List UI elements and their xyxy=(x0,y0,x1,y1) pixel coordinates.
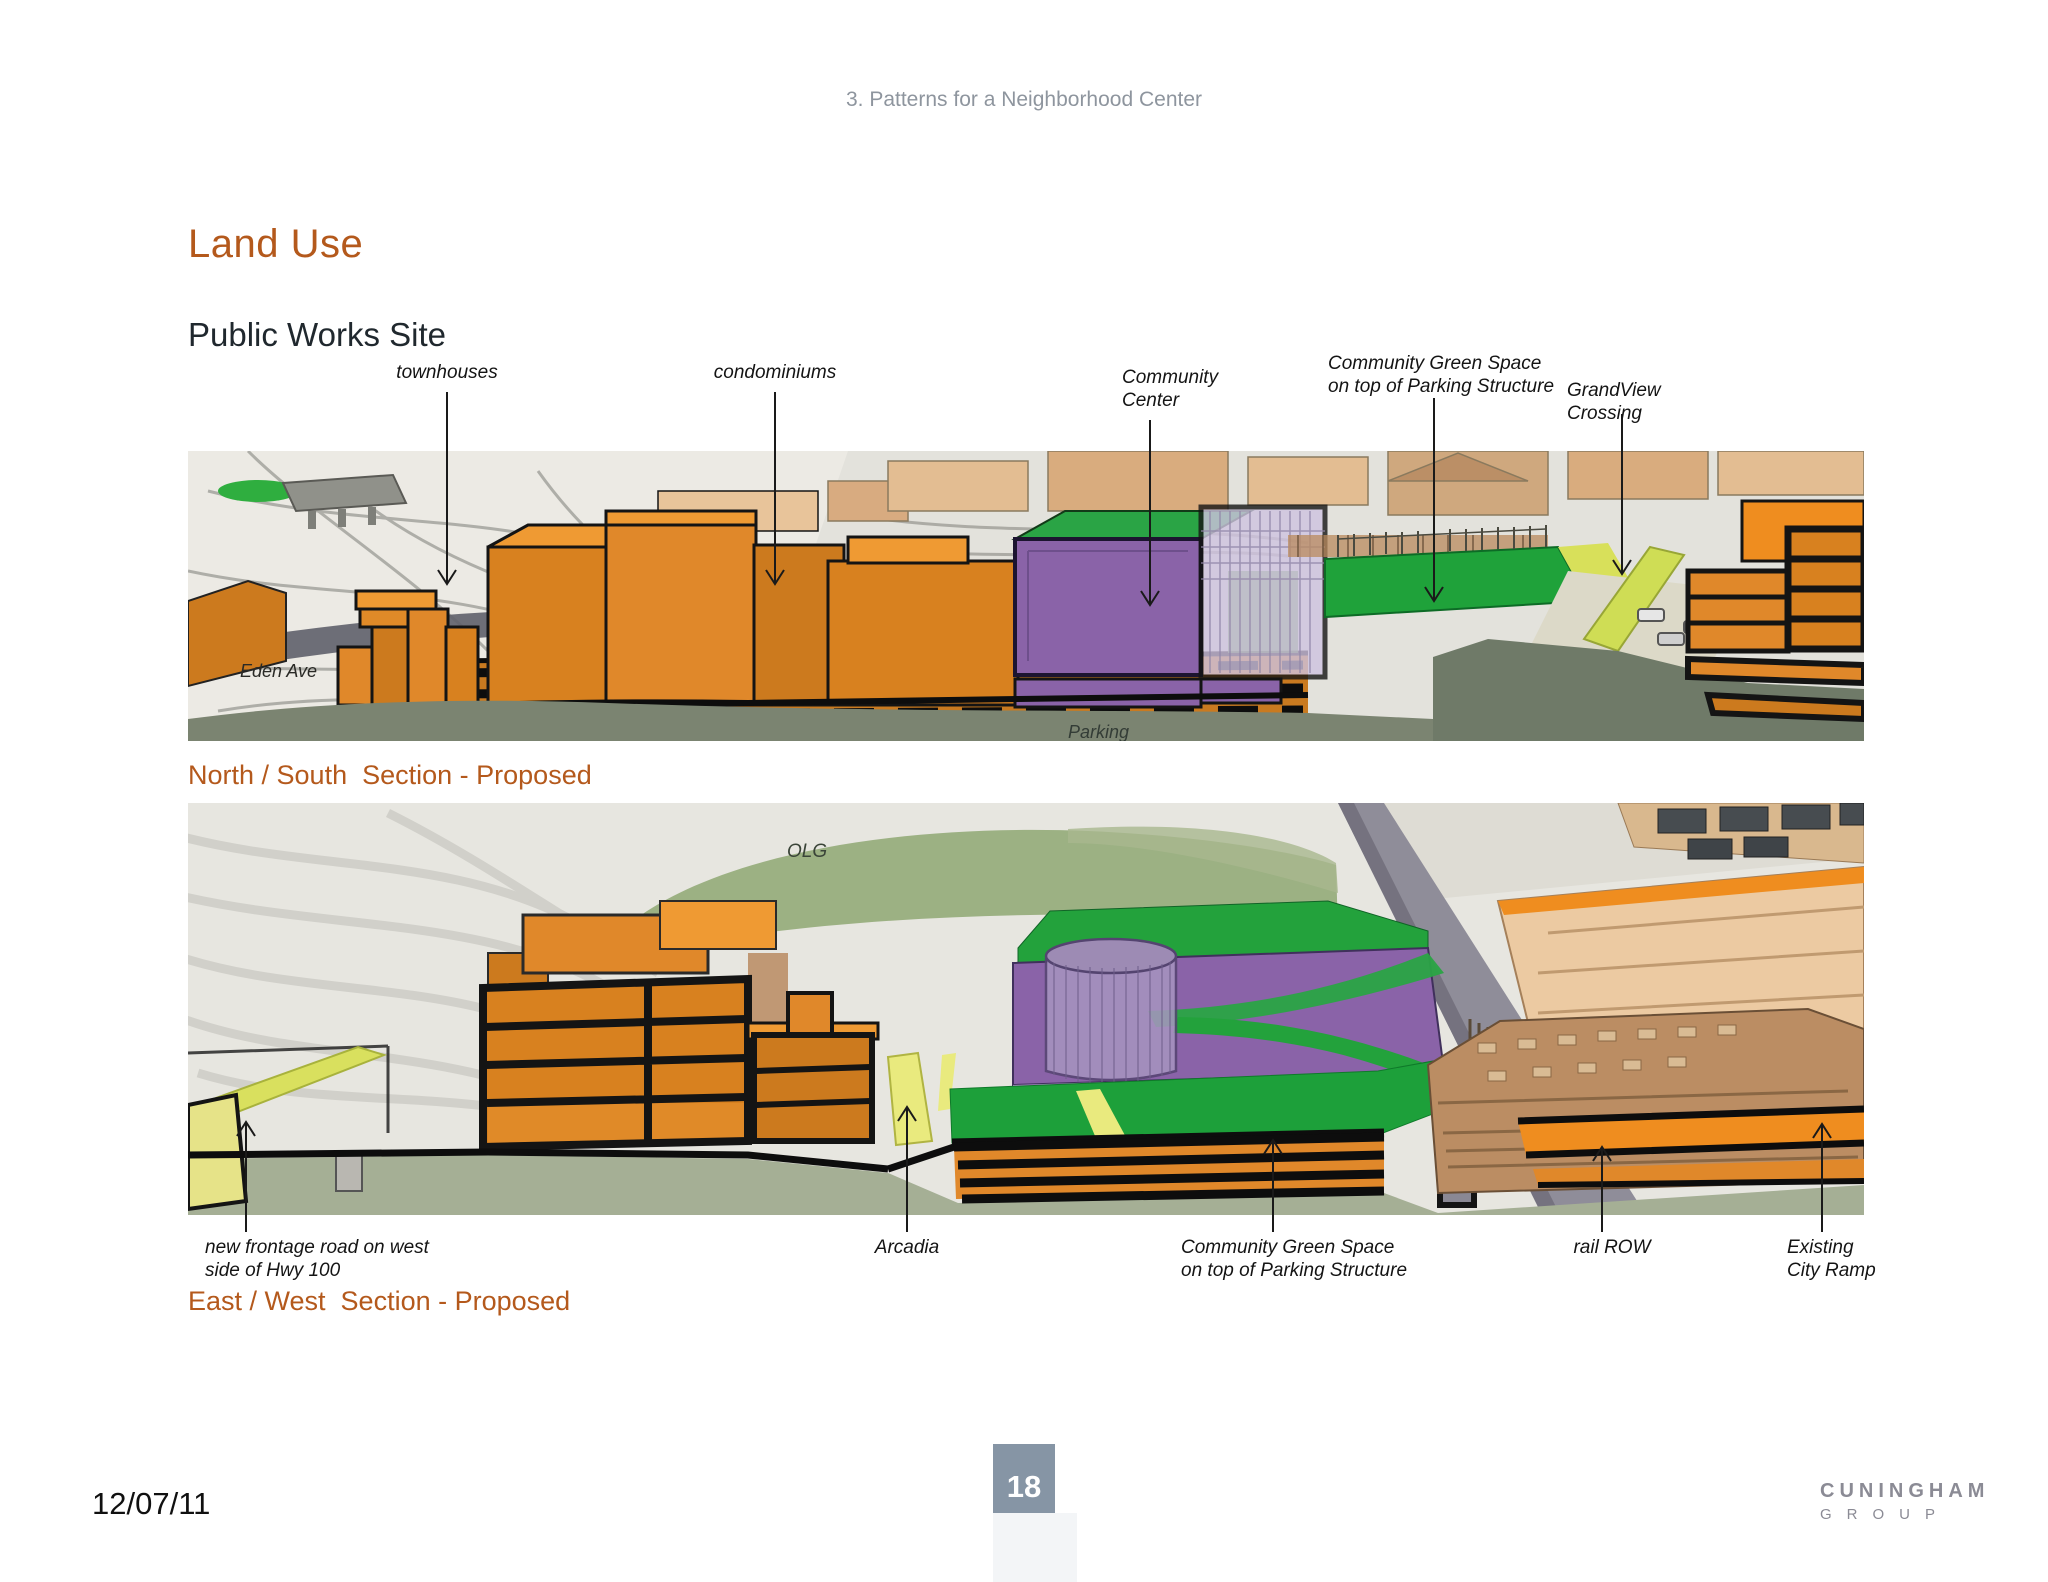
caption-east-west: East / West Section - Proposed xyxy=(188,1286,570,1317)
label-green-space-2: Community Green Space on top of Parking … xyxy=(1181,1236,1407,1282)
label-existing-city-ramp: Existing City Ramp xyxy=(1787,1236,1876,1282)
footer-date: 12/07/11 xyxy=(92,1486,210,1522)
logo-line1: CUNINGHAM xyxy=(1820,1480,1989,1503)
logo-line2: GROUP xyxy=(1820,1506,1989,1523)
east-west-section-render: OLG xyxy=(188,803,1864,1215)
figure-east-west-section: OLG xyxy=(188,803,1864,1215)
cuningham-logo: CUNINGHAM GROUP xyxy=(1820,1480,1989,1523)
document-page: 3. Patterns for a Neighborhood Center La… xyxy=(0,0,2048,1582)
parking-decks xyxy=(888,1133,1384,1199)
eden-ave-label: Eden Ave xyxy=(240,661,317,681)
olg-label: OLG xyxy=(787,841,827,862)
page-header: 3. Patterns for a Neighborhood Center xyxy=(0,88,2048,112)
label-community-center: Community Center xyxy=(1122,366,1218,412)
label-rail-row: rail ROW xyxy=(1573,1236,1650,1259)
label-condominiums: condominiums xyxy=(714,361,837,384)
community-center-complex xyxy=(1013,901,1446,1099)
parking-label: Parking xyxy=(1068,722,1129,741)
north-south-section-render: Eden Ave Parking xyxy=(188,451,1864,741)
page-badge-shadow xyxy=(993,1513,1077,1582)
label-grandview-crossing: GrandView Crossing xyxy=(1567,379,1661,425)
label-frontage-road: new frontage road on west side of Hwy 10… xyxy=(205,1236,429,1282)
community-center-building xyxy=(1015,507,1325,707)
section-subtitle: Public Works Site xyxy=(188,316,446,354)
label-townhouses: townhouses xyxy=(396,361,497,384)
label-arcadia: Arcadia xyxy=(875,1236,939,1259)
page-title: Land Use xyxy=(188,222,363,267)
figure-north-south-section: Eden Ave Parking xyxy=(188,451,1864,741)
caption-north-south: North / South Section - Proposed xyxy=(188,760,592,791)
label-green-space-1: Community Green Space on top of Parking … xyxy=(1328,352,1554,398)
existing-city-ramp xyxy=(1428,1009,1864,1193)
orange-building-cluster-west xyxy=(483,901,788,1147)
page-number-badge: 18 xyxy=(993,1444,1055,1513)
